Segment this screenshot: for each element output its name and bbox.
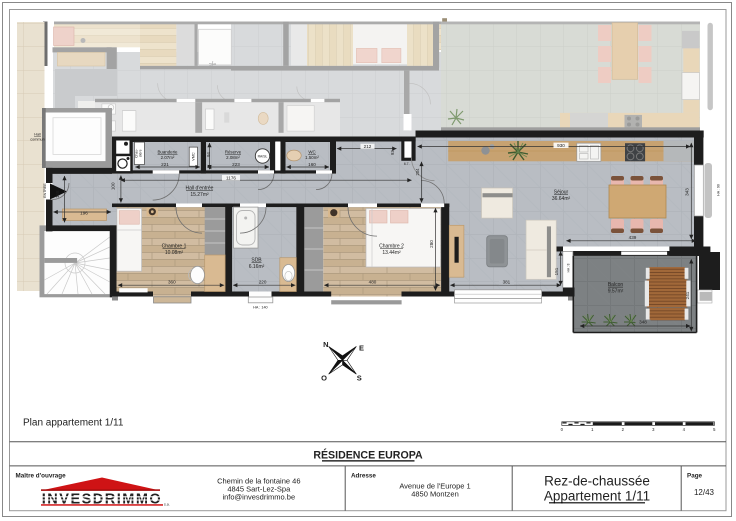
svg-text:Rez-de-chaussée: Rez-de-chaussée xyxy=(544,474,650,489)
svg-text:36.64m²: 36.64m² xyxy=(552,196,571,202)
svg-text:196: 196 xyxy=(80,211,88,216)
svg-text:221: 221 xyxy=(161,162,169,167)
svg-text:Appartement 1/11: Appartement 1/11 xyxy=(544,489,650,504)
svg-text:12/43: 12/43 xyxy=(694,488,715,497)
svg-text:280: 280 xyxy=(429,240,434,248)
svg-text:1176: 1176 xyxy=(226,175,236,180)
svg-text:4850 Montzen: 4850 Montzen xyxy=(411,490,459,499)
svg-text:N: N xyxy=(323,340,328,349)
svg-text:93: 93 xyxy=(390,150,395,155)
svg-text:E: E xyxy=(359,344,364,353)
svg-text:158: 158 xyxy=(55,190,60,198)
svg-text:220: 220 xyxy=(259,279,267,284)
svg-text:commun: commun xyxy=(30,138,45,142)
svg-text:2.08m²: 2.08m² xyxy=(226,155,240,160)
svg-text:Adresse: Adresse xyxy=(351,473,376,480)
svg-text:HA : 140: HA : 140 xyxy=(253,305,268,309)
svg-text:343: 343 xyxy=(684,188,689,196)
svg-text:10.08m²: 10.08m² xyxy=(165,250,184,256)
svg-text:dière: dière xyxy=(139,149,143,157)
svg-text:O: O xyxy=(321,374,327,383)
svg-text:930: 930 xyxy=(557,143,565,148)
svg-text:Buanderie: Buanderie xyxy=(157,150,178,155)
svg-text:2.07m²: 2.07m² xyxy=(161,155,175,160)
svg-text:212: 212 xyxy=(364,144,372,149)
svg-text:HA : 8: HA : 8 xyxy=(567,263,571,272)
svg-text:6.7.: 6.7. xyxy=(404,162,410,166)
svg-text:Hall: Hall xyxy=(34,133,41,137)
svg-text:RA/SL: RA/SL xyxy=(258,155,268,159)
svg-text:13.44m²: 13.44m² xyxy=(382,250,401,256)
svg-text:348: 348 xyxy=(639,320,647,325)
svg-text:94: 94 xyxy=(206,152,211,157)
svg-text:204: 204 xyxy=(415,168,420,176)
svg-text:HA : 90: HA : 90 xyxy=(717,184,721,196)
svg-text:s.a.: s.a. xyxy=(164,503,170,507)
svg-text:WC: WC xyxy=(308,150,315,155)
svg-text:439: 439 xyxy=(629,235,637,240)
svg-text:Maître d'ouvrage: Maître d'ouvrage xyxy=(16,473,67,480)
svg-text:241: 241 xyxy=(685,291,690,299)
svg-text:9.57m²: 9.57m² xyxy=(608,288,624,294)
svg-text:480: 480 xyxy=(369,279,377,284)
svg-text:381: 381 xyxy=(503,280,511,285)
svg-text:S: S xyxy=(357,374,362,383)
svg-text:Page: Page xyxy=(687,473,703,480)
svg-text:160: 160 xyxy=(308,162,316,167)
svg-text:100: 100 xyxy=(110,182,115,190)
svg-text:15.27m²: 15.27m² xyxy=(190,192,209,198)
svg-text:Réserve: Réserve xyxy=(225,150,242,155)
svg-text:ENTREE: ENTREE xyxy=(43,183,47,198)
svg-text:151: 151 xyxy=(554,267,559,275)
svg-text:223: 223 xyxy=(232,162,240,167)
svg-text:360: 360 xyxy=(168,279,176,284)
svg-text:6.16m²: 6.16m² xyxy=(249,264,265,270)
svg-text:info@invesdrimmo.be: info@invesdrimmo.be xyxy=(222,493,295,502)
svg-text:1.50m²: 1.50m² xyxy=(305,155,319,160)
svg-text:VMC: VMC xyxy=(191,152,195,161)
svg-text:Plan appartement 1/11: Plan appartement 1/11 xyxy=(23,418,124,429)
svg-text:RÉSIDENCE EUROPA: RÉSIDENCE EUROPA xyxy=(313,448,423,461)
